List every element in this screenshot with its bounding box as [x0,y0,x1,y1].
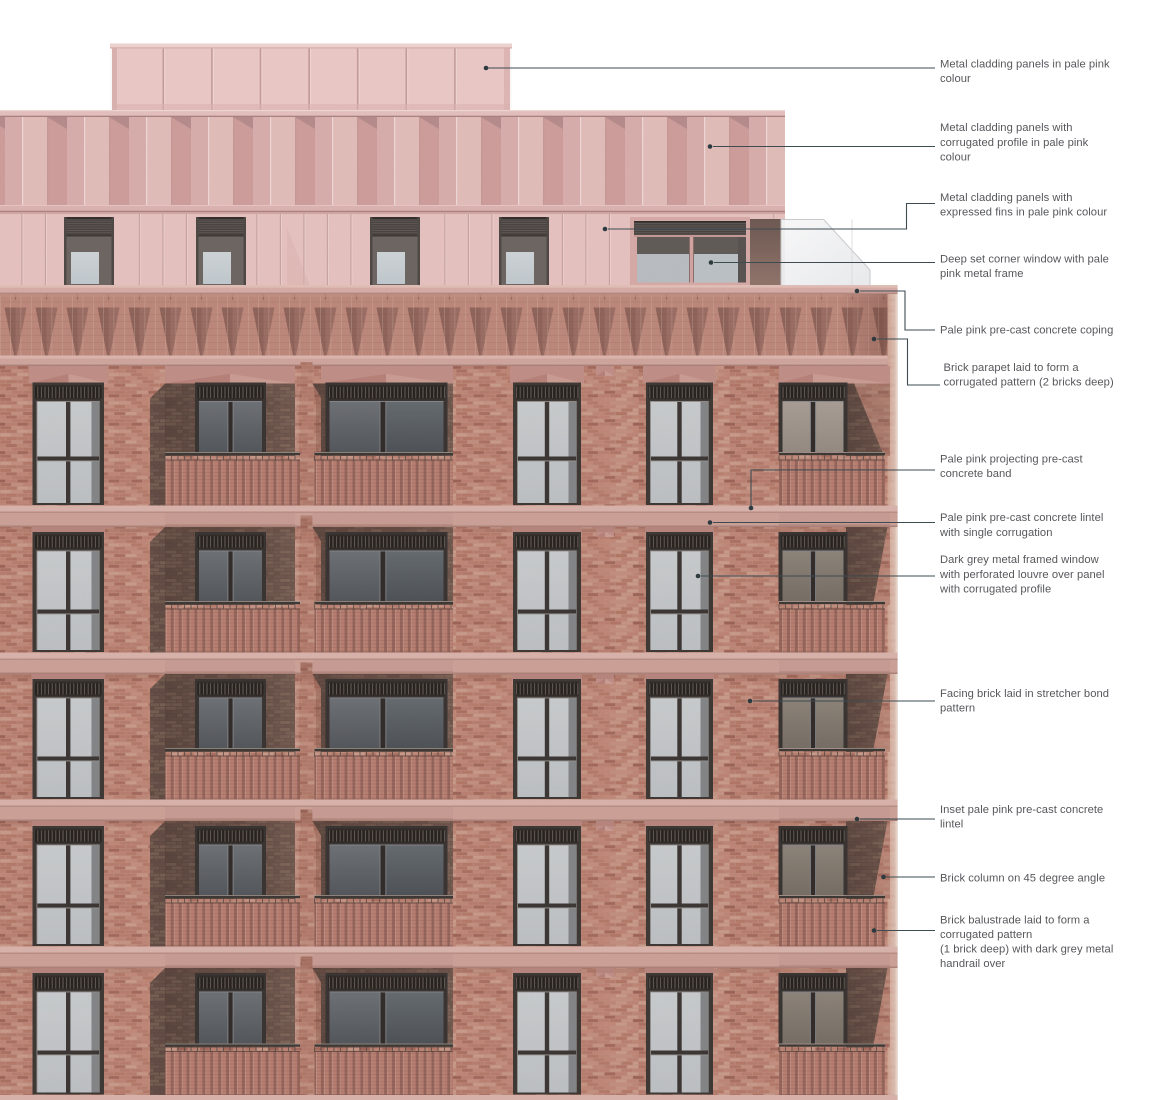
svg-text:Brick parapet laid to form a: Brick parapet laid to form a [944,362,1080,374]
svg-text:with perforated louvre over pa: with perforated louvre over panel [939,569,1105,581]
svg-text:pink metal frame: pink metal frame [940,268,1024,280]
svg-text:corrugated pattern (2 bricks d: corrugated pattern (2 bricks deep) [944,377,1114,389]
svg-text:Dark grey metal framed window: Dark grey metal framed window [940,554,1100,566]
svg-text:Pale pink projecting pre-cast: Pale pink projecting pre-cast [940,453,1083,465]
svg-text:pattern: pattern [940,703,975,715]
svg-text:handrail over: handrail over [940,958,1006,970]
svg-text:concrete band: concrete band [940,468,1012,480]
svg-text:Metal cladding panels with: Metal cladding panels with [940,122,1073,134]
svg-text:Metal cladding panels with: Metal cladding panels with [940,192,1073,204]
svg-text:with single corrugation: with single corrugation [939,527,1052,539]
svg-text:Brick balustrade laid to form: Brick balustrade laid to form a [940,914,1090,926]
svg-text:Metal cladding panels in pale: Metal cladding panels in pale pink [940,59,1110,71]
svg-text:with corrugated profile: with corrugated profile [939,583,1051,595]
svg-text:colour: colour [940,151,971,163]
svg-text:Deep set corner window with pa: Deep set corner window with pale [940,253,1109,265]
svg-text:Pale pink pre-cast concrete co: Pale pink pre-cast concrete coping [940,325,1113,337]
svg-text:colour: colour [940,73,971,85]
svg-text:Pale pink pre-cast concrete li: Pale pink pre-cast concrete lintel [940,512,1103,524]
svg-text:corrugated profile in pale pin: corrugated profile in pale pink [940,137,1089,149]
svg-text:Inset pale pink pre-cast concr: Inset pale pink pre-cast concrete [940,804,1103,816]
svg-text:Facing brick laid in stretcher: Facing brick laid in stretcher bond [940,688,1109,700]
svg-text:(1 brick deep) with dark grey: (1 brick deep) with dark grey metal [940,944,1113,956]
svg-text:Brick column on 45 degree angl: Brick column on 45 degree angle [940,872,1105,884]
svg-text:expressed fins in pale pink co: expressed fins in pale pink colour [940,207,1107,219]
svg-text:corrugated pattern: corrugated pattern [940,929,1032,941]
svg-text:lintel: lintel [940,819,963,831]
